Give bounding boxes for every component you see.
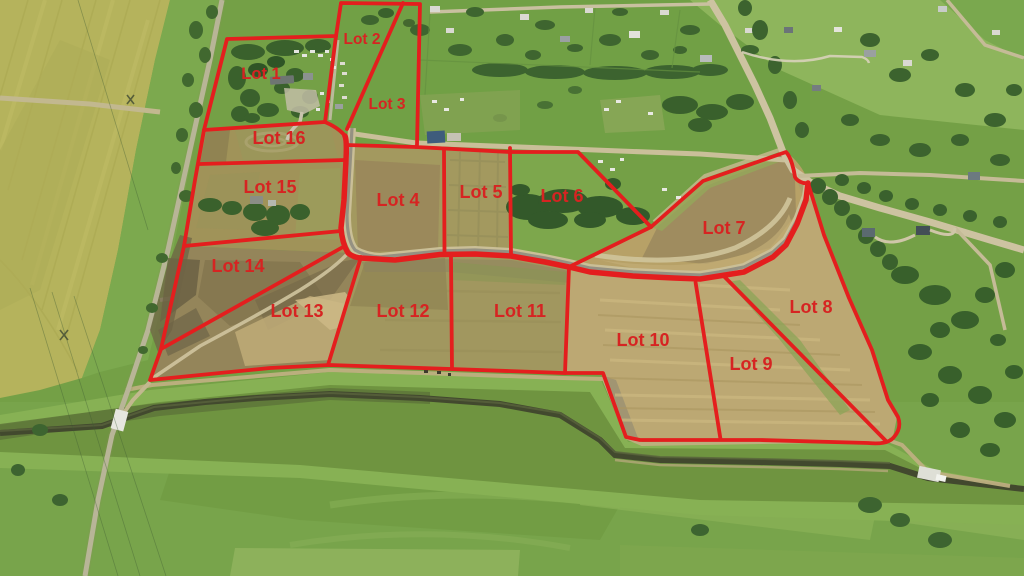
svg-text:Lot 7: Lot 7 — [703, 218, 746, 238]
svg-text:Lot 10: Lot 10 — [616, 330, 669, 350]
svg-text:Lot 16: Lot 16 — [252, 128, 305, 148]
svg-text:Lot 4: Lot 4 — [377, 190, 420, 210]
svg-text:Lot 6: Lot 6 — [541, 186, 584, 206]
svg-text:Lot 15: Lot 15 — [243, 177, 296, 197]
svg-text:Lot 5: Lot 5 — [460, 182, 503, 202]
svg-text:Lot 9: Lot 9 — [730, 354, 773, 374]
svg-text:Lot 14: Lot 14 — [211, 256, 264, 276]
svg-text:Lot 2: Lot 2 — [343, 31, 380, 48]
svg-text:Lot 3: Lot 3 — [368, 96, 405, 113]
svg-text:Lot 8: Lot 8 — [790, 297, 833, 317]
svg-text:Lot 13: Lot 13 — [270, 301, 323, 321]
svg-text:Lot 11: Lot 11 — [494, 301, 546, 321]
svg-text:Lot 12: Lot 12 — [376, 301, 429, 321]
svg-text:Lot 1: Lot 1 — [241, 65, 280, 83]
